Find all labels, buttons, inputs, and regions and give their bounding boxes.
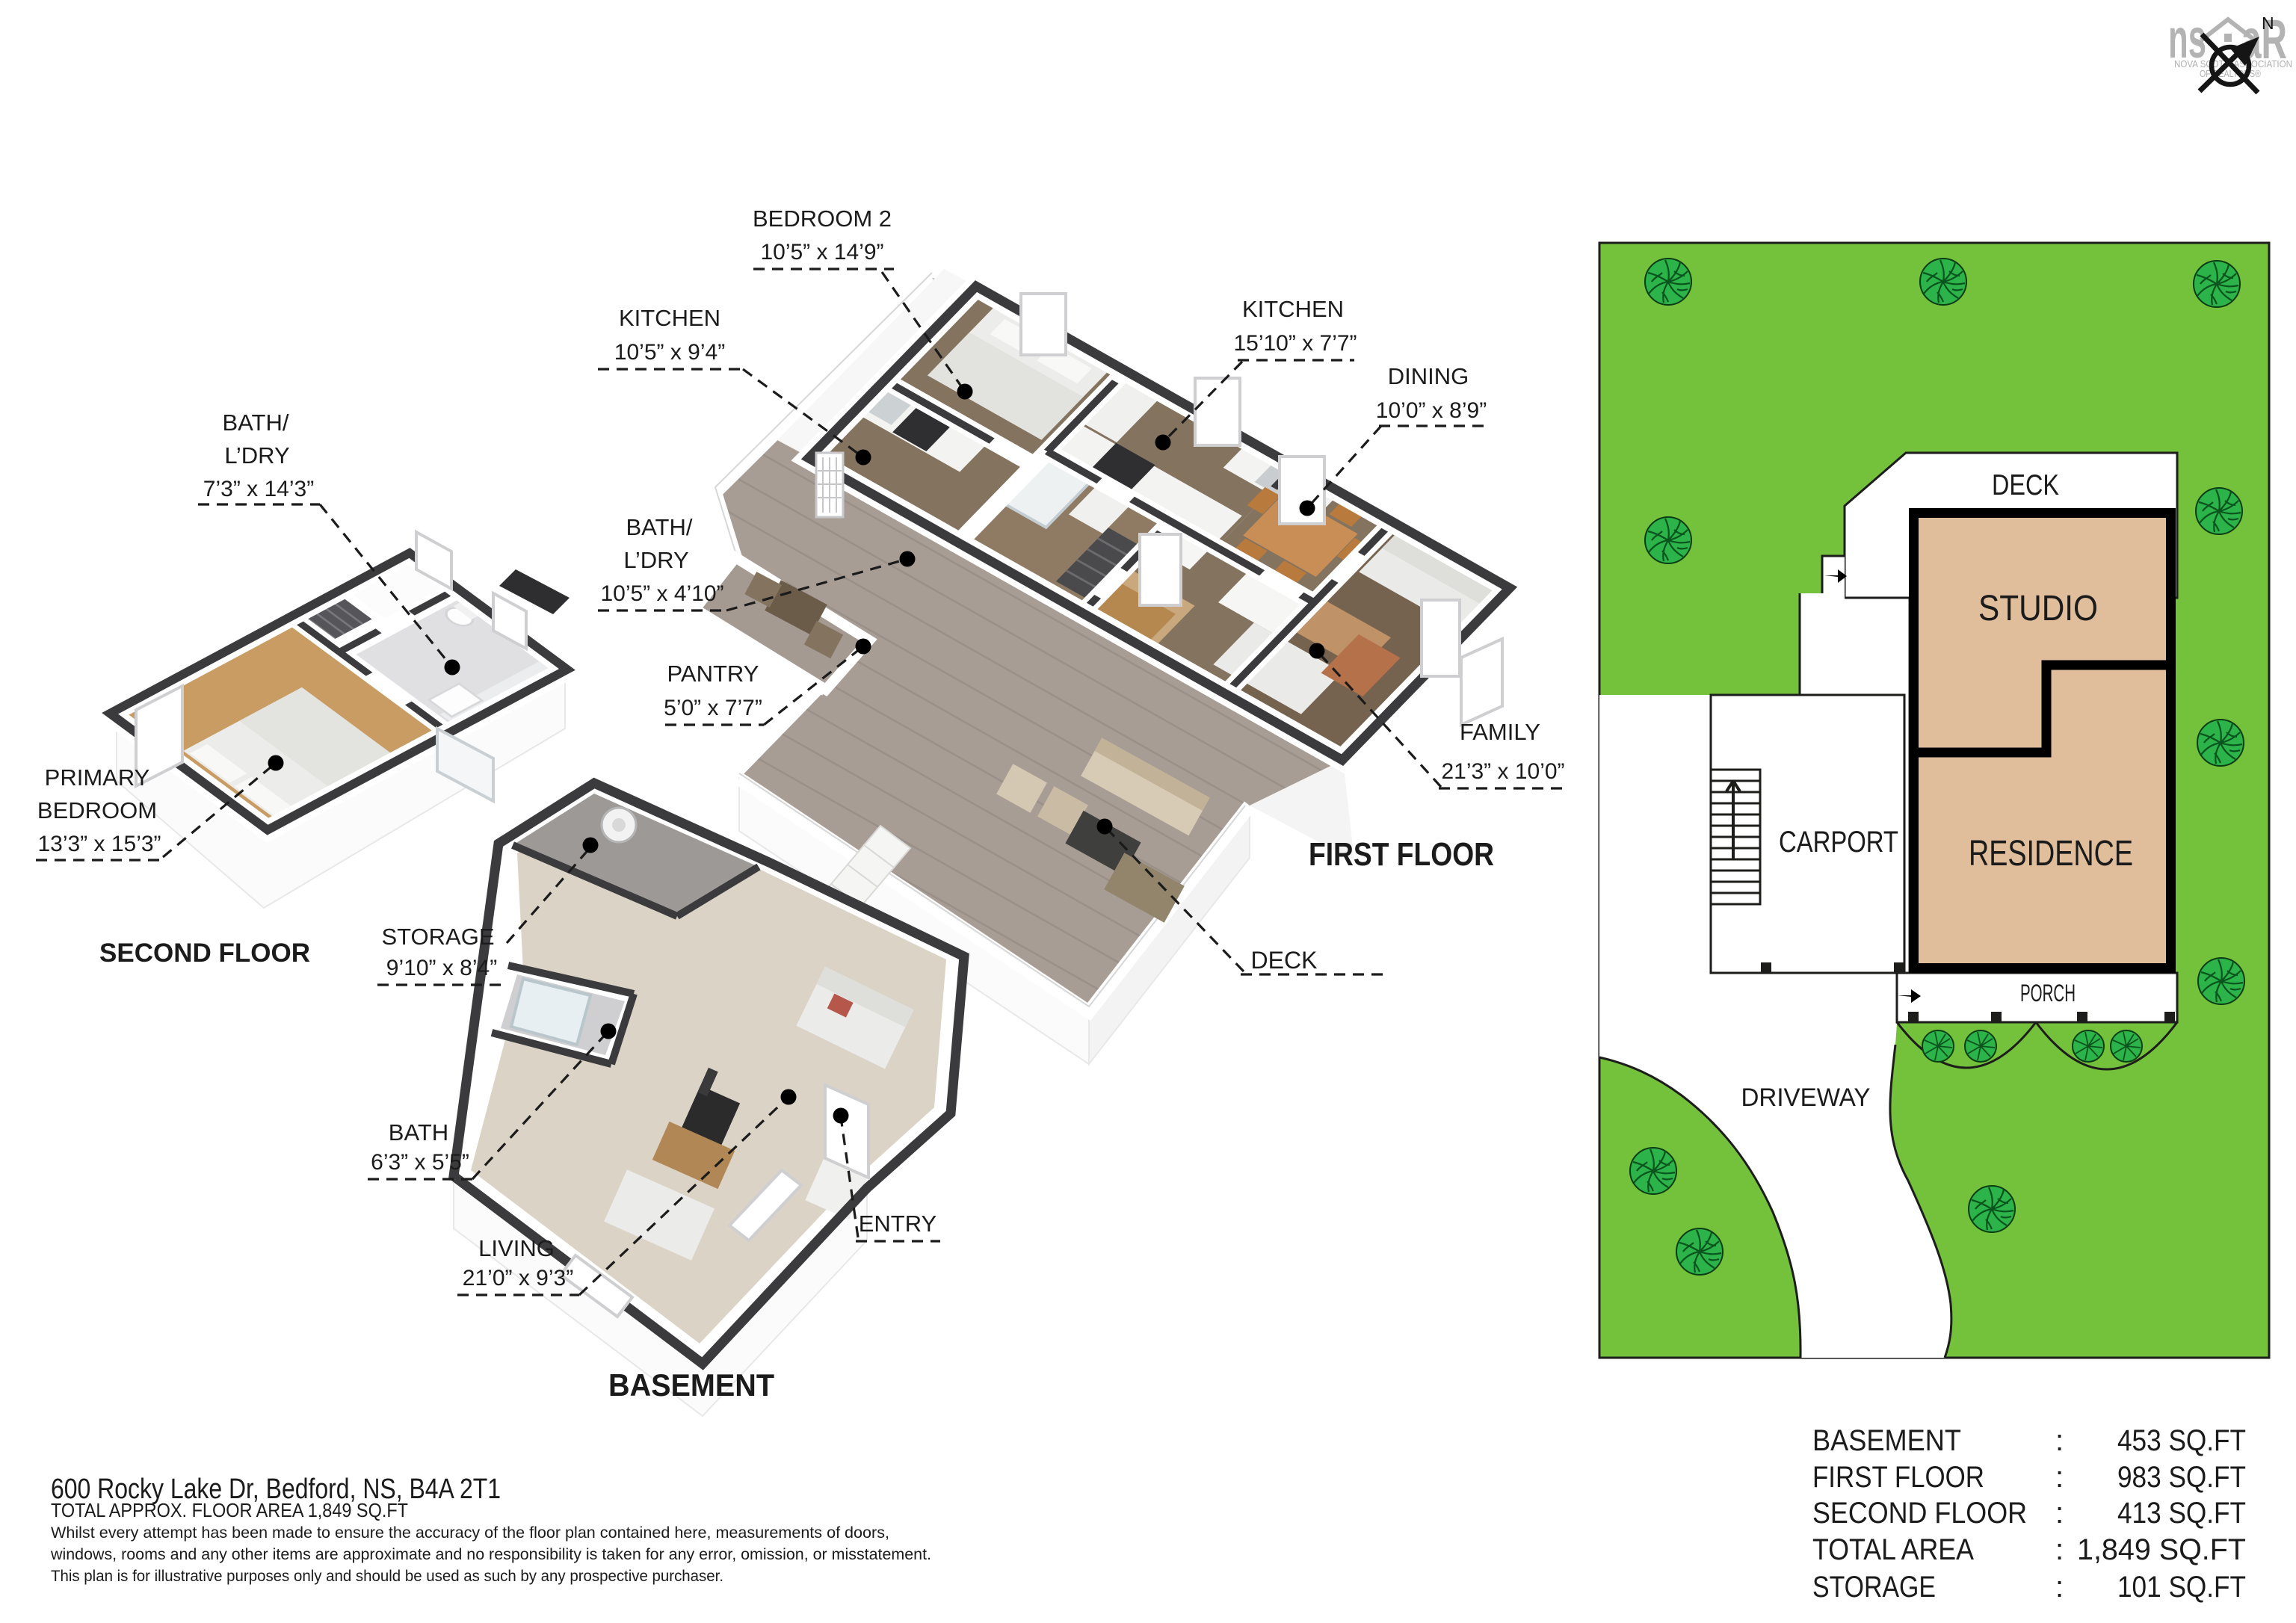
svg-text:BATH: BATH — [389, 1119, 448, 1146]
svg-text:FIRST FLOOR: FIRST FLOOR — [1812, 1461, 1984, 1494]
svg-text:983 SQ.FT: 983 SQ.FT — [2117, 1461, 2246, 1494]
svg-text:BATH/: BATH/ — [626, 514, 693, 540]
svg-text:Whilst every attempt has been: Whilst every attempt has been made to en… — [51, 1524, 889, 1542]
svg-text:BEDROOM 2: BEDROOM 2 — [753, 205, 892, 232]
svg-text:21’3” x 10’0”: 21’3” x 10’0” — [1441, 759, 1564, 784]
svg-text:10’0” x 8’9”: 10’0” x 8’9” — [1376, 398, 1487, 423]
svg-text:21’0” x 9’3”: 21’0” x 9’3” — [463, 1266, 573, 1290]
svg-text:windows, rooms and any other i: windows, rooms and any other items are a… — [50, 1546, 931, 1563]
svg-text::: : — [2055, 1424, 2064, 1457]
svg-text:9’10” x 8’4”: 9’10” x 8’4” — [386, 956, 497, 980]
svg-text:This plan is for illustrative: This plan is for illustrative purposes o… — [51, 1568, 723, 1585]
svg-text:5’0” x 7’7”: 5’0” x 7’7” — [664, 696, 762, 720]
svg-text:PORCH: PORCH — [2020, 980, 2076, 1007]
svg-text:SECOND FLOOR: SECOND FLOOR — [1812, 1497, 2027, 1530]
svg-text:10’5” x 9’4”: 10’5” x 9’4” — [614, 340, 725, 365]
svg-text:DRIVEWAY: DRIVEWAY — [1741, 1083, 1871, 1112]
svg-text:ENTRY: ENTRY — [859, 1211, 937, 1237]
svg-text:L’DRY: L’DRY — [224, 442, 289, 469]
svg-text::: : — [2055, 1571, 2064, 1604]
svg-text:BATH/: BATH/ — [223, 409, 289, 436]
svg-text::: : — [2055, 1533, 2064, 1566]
svg-text:6’3” x 5’5”: 6’3” x 5’5” — [371, 1150, 469, 1175]
svg-text:453 SQ.FT: 453 SQ.FT — [2117, 1424, 2246, 1457]
svg-text:L’DRY: L’DRY — [623, 547, 688, 573]
svg-text:KITCHEN: KITCHEN — [619, 305, 720, 331]
svg-text:FIRST FLOOR: FIRST FLOOR — [1309, 836, 1494, 873]
svg-text:BASEMENT: BASEMENT — [608, 1367, 774, 1403]
svg-text:DECK: DECK — [1251, 947, 1318, 974]
svg-text:PRIMARY: PRIMARY — [45, 764, 150, 791]
svg-text:10’5” x 4’10”: 10’5” x 4’10” — [600, 581, 723, 606]
svg-text:10’5” x 14’9”: 10’5” x 14’9” — [760, 240, 883, 265]
svg-text:413 SQ.FT: 413 SQ.FT — [2117, 1497, 2246, 1530]
svg-text:BEDROOM: BEDROOM — [37, 797, 157, 823]
svg-text:STUDIO: STUDIO — [1978, 589, 2098, 628]
svg-text:PANTRY: PANTRY — [667, 661, 759, 687]
svg-text:DECK: DECK — [1992, 469, 2059, 501]
svg-text:DINING: DINING — [1388, 363, 1469, 389]
svg-text:OF REALTORS®: OF REALTORS® — [2200, 69, 2262, 79]
svg-text:RESIDENCE: RESIDENCE — [1969, 834, 2133, 874]
svg-text::: : — [2055, 1497, 2064, 1530]
svg-text:1,849 SQ.FT: 1,849 SQ.FT — [2077, 1533, 2246, 1566]
svg-text:STORAGE: STORAGE — [1812, 1571, 1936, 1604]
svg-text:BASEMENT: BASEMENT — [1812, 1424, 1961, 1457]
svg-text:TOTAL APPROX. FLOOR AREA 1,849: TOTAL APPROX. FLOOR AREA 1,849 SQ.FT — [51, 1499, 408, 1521]
svg-text::: : — [2055, 1461, 2064, 1494]
svg-text:15’10” x 7’7”: 15’10” x 7’7” — [1233, 331, 1357, 356]
svg-text:STORAGE: STORAGE — [381, 924, 494, 950]
svg-text:TOTAL AREA: TOTAL AREA — [1812, 1533, 1974, 1566]
svg-text:CARPORT: CARPORT — [1779, 826, 1898, 859]
svg-text:13’3” x 15’3”: 13’3” x 15’3” — [37, 832, 161, 856]
svg-text:SECOND FLOOR: SECOND FLOOR — [99, 939, 310, 968]
svg-text:LIVING: LIVING — [478, 1235, 555, 1261]
svg-text:N: N — [2262, 13, 2274, 33]
svg-text:KITCHEN: KITCHEN — [1242, 296, 1344, 322]
svg-text:101 SQ.FT: 101 SQ.FT — [2117, 1571, 2246, 1604]
svg-text:FAMILY: FAMILY — [1460, 719, 1540, 745]
svg-text:7’3” x 14’3”: 7’3” x 14’3” — [203, 477, 314, 501]
